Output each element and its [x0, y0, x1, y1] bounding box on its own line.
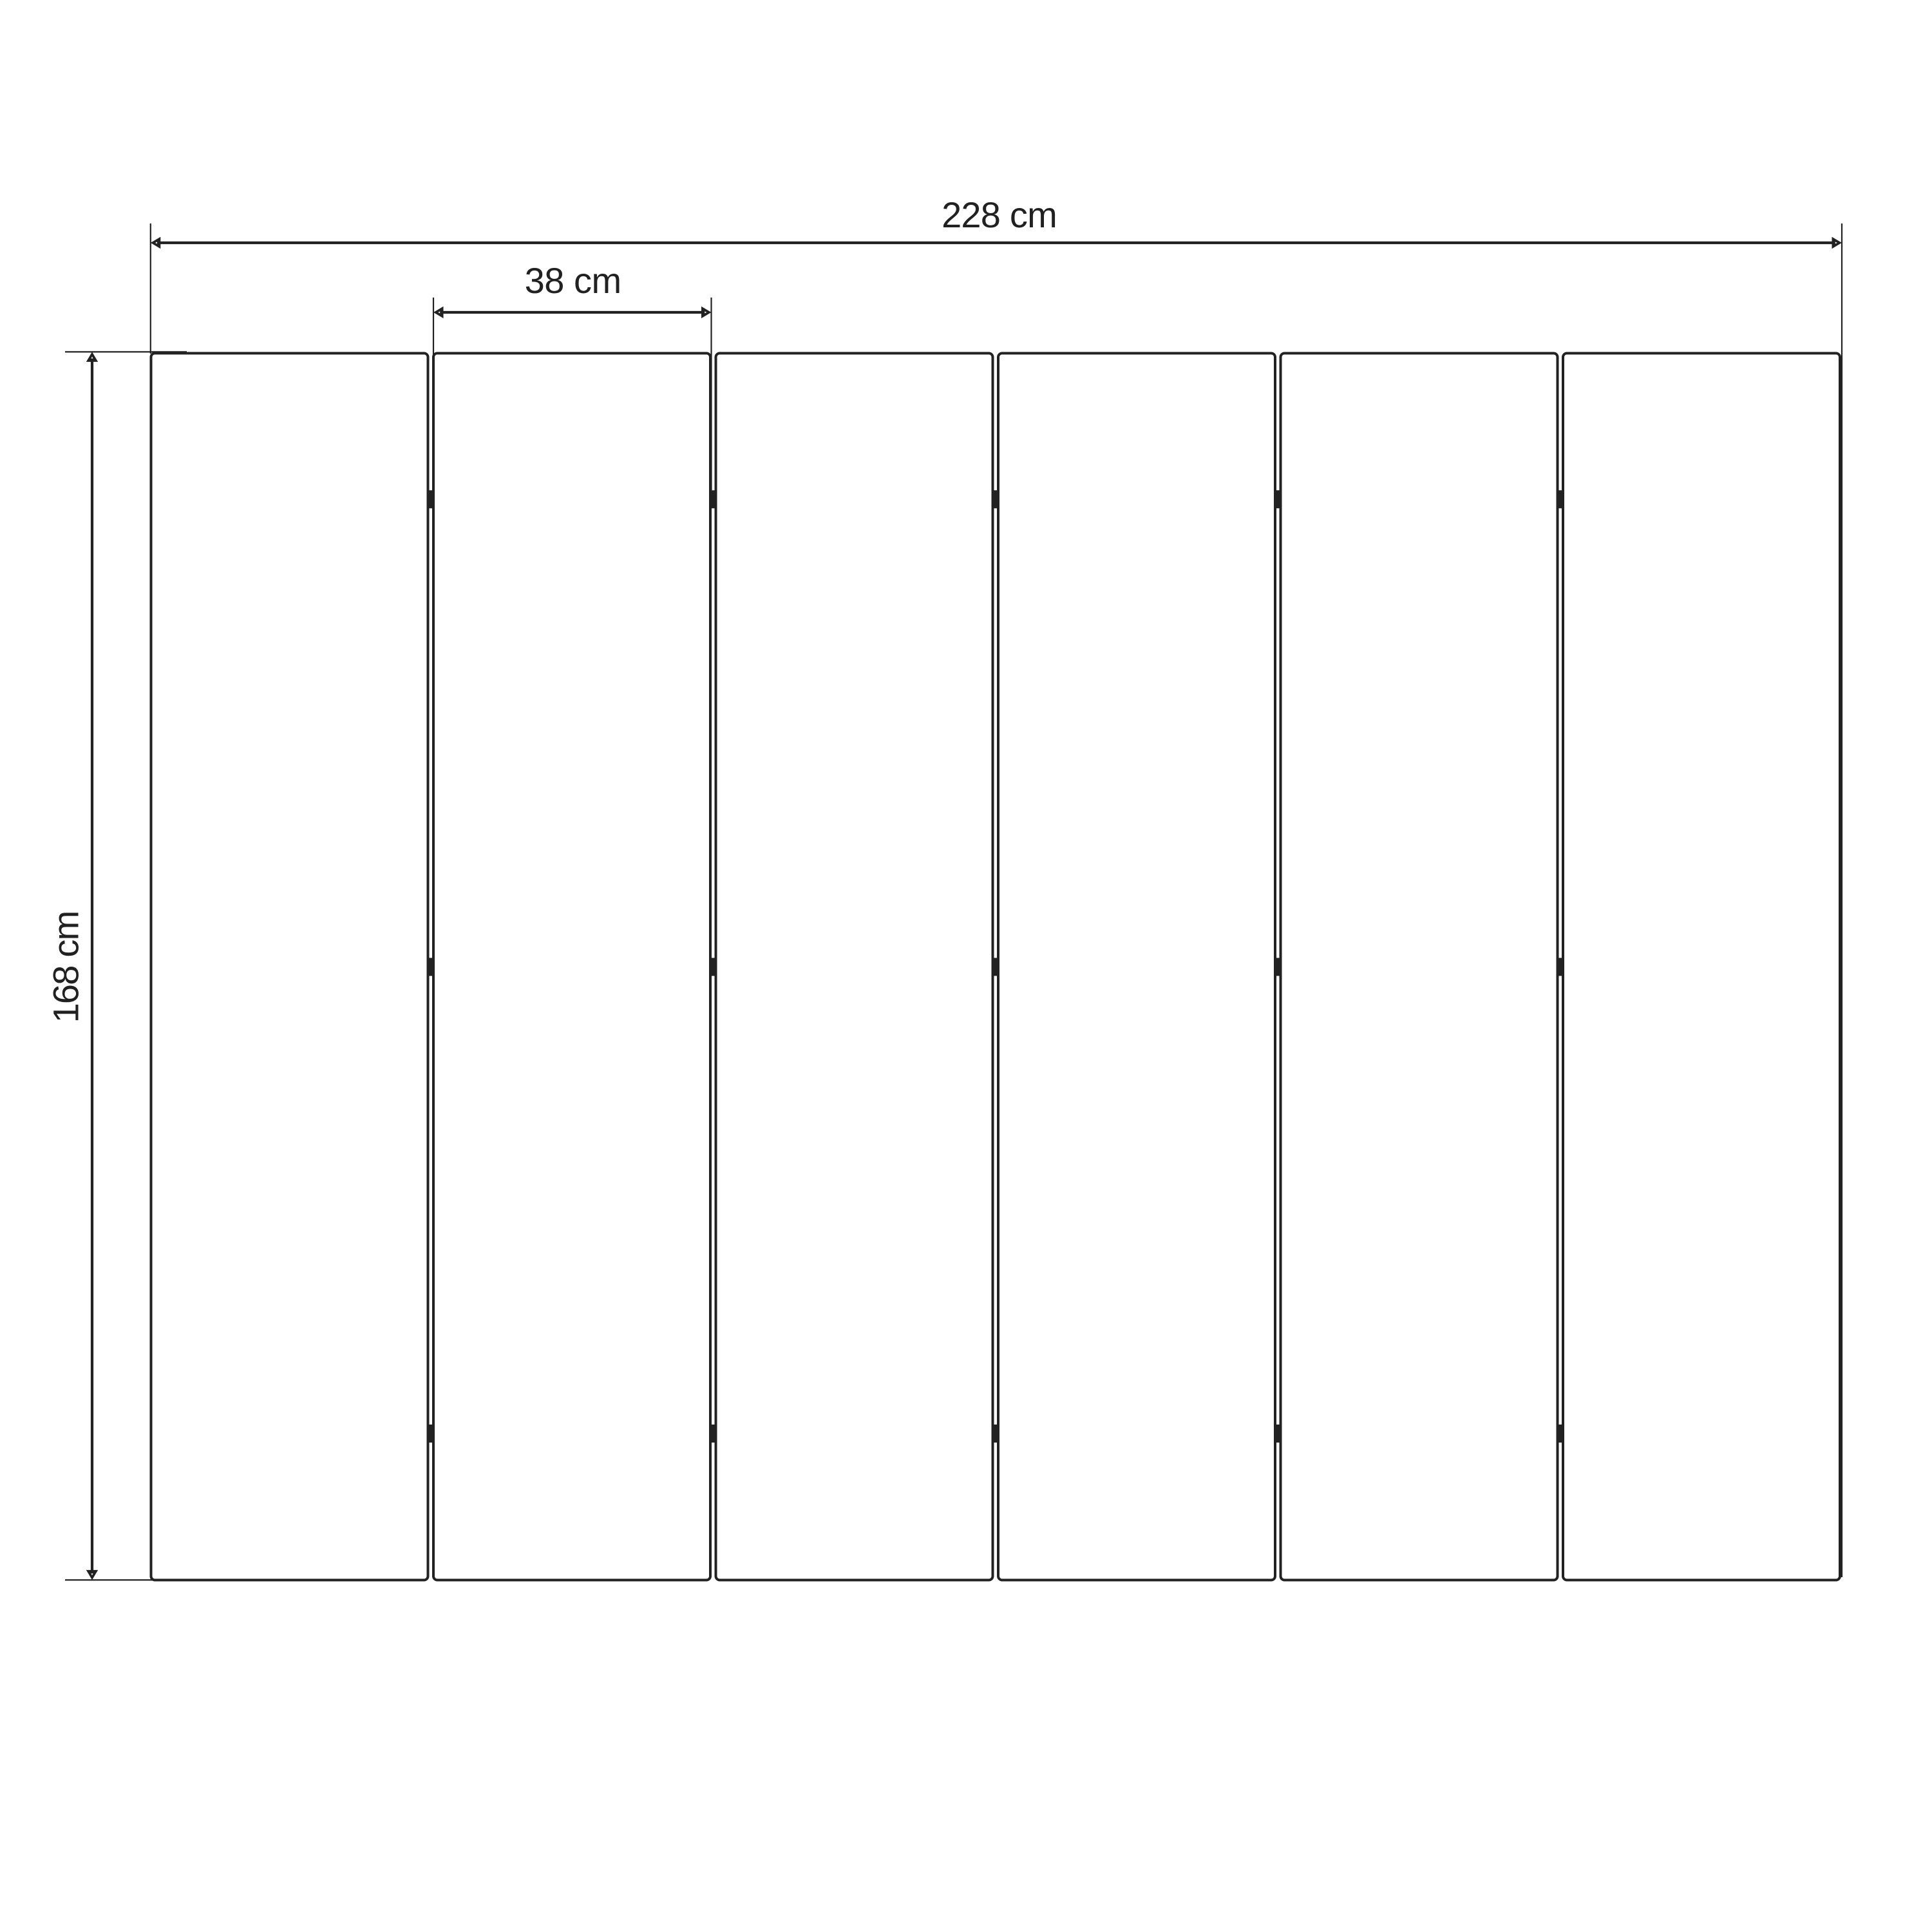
- svg-text:168 cm: 168 cm: [46, 912, 86, 1023]
- svg-text:38 cm: 38 cm: [525, 260, 621, 301]
- svg-text:228 cm: 228 cm: [942, 194, 1057, 235]
